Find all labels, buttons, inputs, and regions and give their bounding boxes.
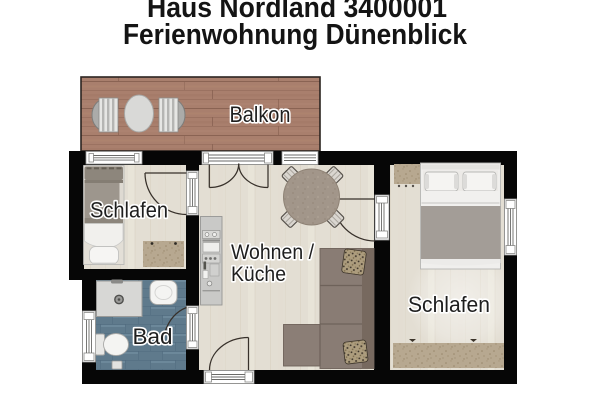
svg-text:Schlafen: Schlafen <box>90 198 168 223</box>
svg-text:Balkon: Balkon <box>230 102 291 127</box>
svg-text:Küche: Küche <box>231 263 286 286</box>
svg-text:Wohnen /: Wohnen / <box>231 241 314 264</box>
svg-text:Ferienwohnung Dünenblick: Ferienwohnung Dünenblick <box>123 19 468 51</box>
svg-text:Bad: Bad <box>133 324 173 349</box>
svg-text:Schlafen: Schlafen <box>408 292 490 317</box>
